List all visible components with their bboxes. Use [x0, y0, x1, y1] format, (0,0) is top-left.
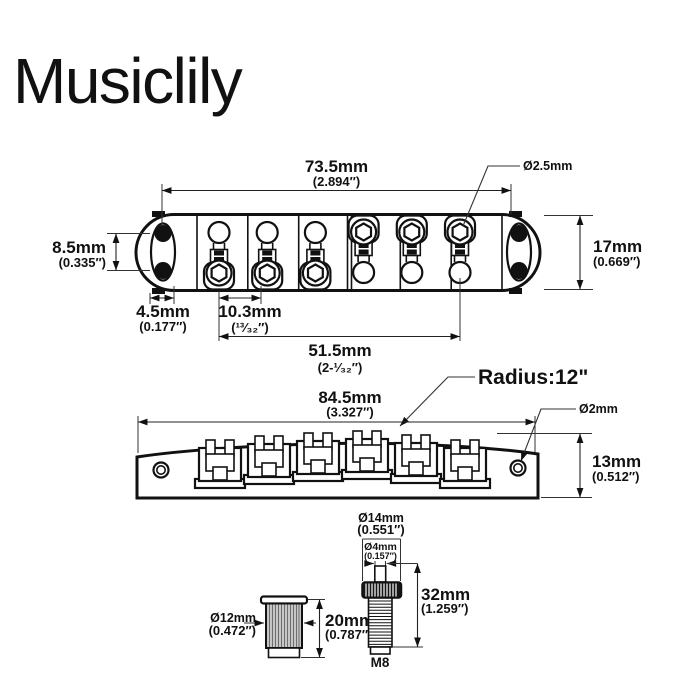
- post-figure: Ø14mm (0.551″) Ø4mm (0.157″): [357, 511, 470, 670]
- post-tip: [375, 566, 386, 582]
- post-end: [371, 647, 391, 654]
- post-hole-right: [511, 461, 526, 476]
- post-length-inches: (1.259″): [421, 601, 468, 616]
- saddle-side-6: [440, 440, 490, 488]
- bushing-flange: [261, 597, 307, 604]
- mounting-slot-right: [507, 224, 531, 281]
- body-width-inches: (0.669″): [593, 254, 640, 269]
- body-height-inches: (0.512″): [592, 469, 639, 484]
- dim-string-spacing: 10.3mm (¹³⁄₃₂″): [218, 286, 281, 341]
- hole-dia-label: Ø2mm: [579, 402, 618, 416]
- string-spacing-label: 10.3mm: [218, 302, 281, 321]
- post-tip-dia-inches: (0.157″): [364, 551, 397, 561]
- bushing-figure: Ø12mm (0.472″) 20mm (0.787″): [209, 597, 375, 658]
- string-span-label: 51.5mm: [308, 341, 371, 360]
- bushing-base: [269, 648, 300, 658]
- dim-post-length: 32mm (1.259″): [387, 564, 470, 648]
- post-hole-left: [154, 463, 169, 478]
- saddle-side-1: [195, 440, 245, 488]
- slot-spacing-inches: (0.335″): [59, 255, 106, 270]
- overall-width-inches: (2.894″): [313, 174, 360, 189]
- brand-logo: Musiclily: [13, 45, 243, 117]
- bushing-dia-inches: (0.472″): [209, 623, 256, 638]
- post-thread-label: M8: [371, 655, 390, 670]
- dim-body-width: 17mm (0.669″): [544, 216, 642, 290]
- bushing-height-inches: (0.787″): [325, 627, 372, 642]
- dim-bushing-height: 20mm (0.787″): [301, 600, 374, 658]
- edge-offset-inches: (0.177″): [139, 319, 186, 334]
- product-dimension-sheet: Musiclily: [0, 0, 700, 700]
- string-spacing-inches: (¹³⁄₃₂″): [231, 320, 269, 335]
- top-view: 73.5mm (2.894″) Ø2.5mm 17mm (0.669″) 8.5…: [52, 157, 642, 375]
- mounting-slot-left: [151, 224, 175, 281]
- string-span-inches: (2-¹⁄₃₂″): [318, 360, 363, 375]
- screw-dia-label: Ø2.5mm: [523, 159, 572, 173]
- shaft-threads: [369, 601, 393, 644]
- side-view: Radius:12" 84.5mm (3.327″) Ø2mm 13mm (0.…: [137, 366, 641, 498]
- saddle-side-3: [293, 433, 343, 481]
- saddle-side-4: [342, 431, 392, 479]
- dim-radius: Radius:12": [400, 366, 588, 426]
- radius-label: Radius:12": [478, 366, 588, 389]
- technical-drawing: Musiclily: [0, 0, 700, 700]
- post-head-dia-inches: (0.551″): [357, 522, 404, 537]
- saddle-side-5: [391, 435, 441, 483]
- saddle-side-2: [244, 436, 294, 484]
- overall-length-inches: (3.327″): [326, 405, 373, 420]
